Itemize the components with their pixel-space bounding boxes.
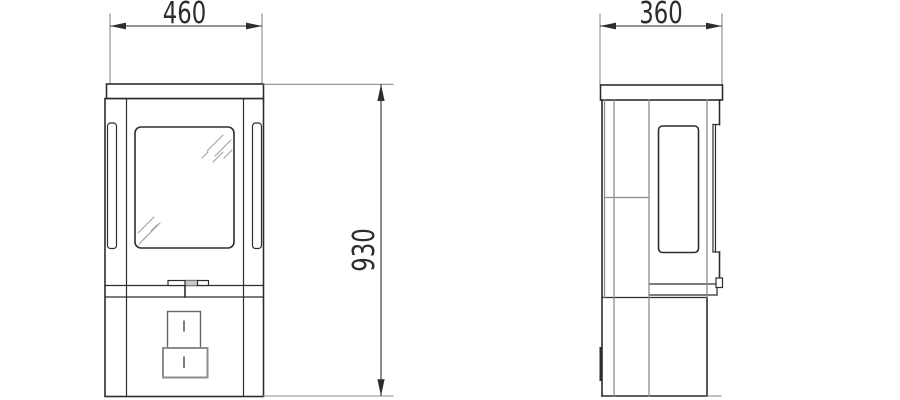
side-panel-seams xyxy=(605,100,708,396)
front-width-dimension: 460 xyxy=(110,0,262,83)
arrowhead-top xyxy=(377,84,384,101)
side-view: 360 xyxy=(600,0,723,396)
front-width-label: 460 xyxy=(163,0,206,31)
arrowhead-bottom xyxy=(377,379,384,396)
base-lower-box xyxy=(163,348,208,378)
side-depth-dimension: 360 xyxy=(600,0,722,85)
overall-height-label: 930 xyxy=(347,228,382,271)
front-view: 460 xyxy=(105,0,393,397)
front-top-plate xyxy=(107,84,264,99)
arrowhead-left xyxy=(110,23,126,30)
side-window-glass xyxy=(659,126,699,253)
side-depth-label: 360 xyxy=(639,0,682,31)
side-handle-block xyxy=(716,278,723,288)
side-body-outline xyxy=(602,100,723,396)
drawing-svg: 460 xyxy=(0,0,900,400)
arrowhead-right xyxy=(246,23,262,30)
side-back-leg xyxy=(600,347,603,381)
arrowhead-left xyxy=(600,23,616,30)
arrowhead-right xyxy=(706,23,722,30)
dimension-label-group: 360 xyxy=(639,0,682,31)
side-top-plate xyxy=(601,85,723,100)
stove-dimension-drawing: 460 xyxy=(0,0,900,400)
dimension-label-group: 460 xyxy=(163,0,206,31)
front-base-detail xyxy=(163,312,208,378)
handle-center xyxy=(185,281,198,286)
overall-height-dimension: 930 xyxy=(264,84,394,396)
dimension-label-group: 930 xyxy=(347,228,382,271)
